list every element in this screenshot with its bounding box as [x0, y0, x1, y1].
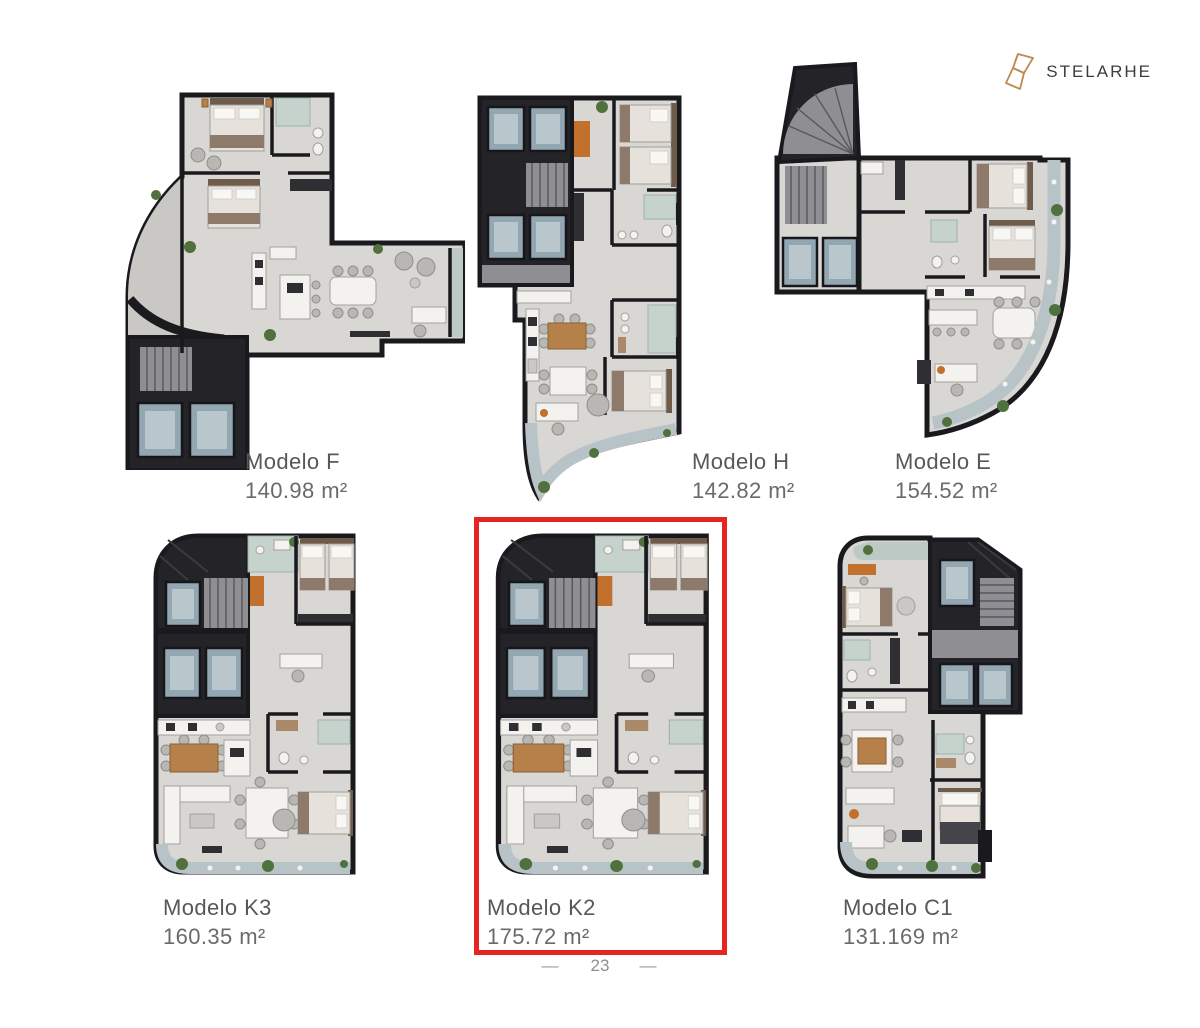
plan-name: Modelo E: [895, 447, 998, 476]
plan-area: 175.72 m²: [487, 922, 596, 951]
plan-modelo-e[interactable]: [765, 62, 1078, 440]
plan-name: Modelo F: [245, 447, 348, 476]
lift-block: [156, 632, 248, 716]
plan-area: 154.52 m²: [895, 476, 998, 505]
plan-name: Modelo H: [692, 447, 795, 476]
bedroom-1: [202, 98, 272, 151]
plan-area: 160.35 m²: [163, 922, 272, 951]
plan-modelo-k2[interactable]: [490, 528, 722, 888]
dining: [330, 266, 376, 318]
plan-area: 140.98 m²: [245, 476, 348, 505]
stair-core: [930, 540, 1020, 712]
floor-plan-modelo-k3-image: [148, 528, 368, 888]
plan-modelo-h[interactable]: [462, 85, 712, 505]
stair-core: [156, 536, 248, 630]
kitchen: [158, 720, 250, 735]
plan-name: Modelo K3: [163, 893, 272, 922]
plan-area: 131.169 m²: [843, 922, 958, 951]
label-modelo-e: Modelo E 154.52 m²: [895, 447, 998, 505]
label-modelo-c1: Modelo C1 131.169 m²: [843, 893, 958, 951]
bedroom-1: [977, 162, 1033, 210]
footer-dash-right: —: [639, 956, 658, 976]
footer-dash-left: —: [542, 956, 561, 976]
kitchen: [842, 698, 906, 712]
stair-core: [128, 337, 247, 470]
plan-name: Modelo K2: [487, 893, 596, 922]
page: STELARHE: [0, 0, 1200, 1028]
stair-core: [480, 98, 572, 285]
label-modelo-k2: Modelo K2 175.72 m²: [487, 893, 596, 951]
floor-plan-modelo-e-image: [765, 62, 1078, 440]
label-modelo-f: Modelo F 140.98 m²: [245, 447, 348, 505]
label-modelo-h: Modelo H 142.82 m²: [692, 447, 795, 505]
floor-plan-modelo-c1-image: [828, 530, 1062, 888]
plan-modelo-f[interactable]: [120, 85, 465, 470]
plan-modelo-c1[interactable]: [828, 530, 1062, 888]
page-footer: — 23 —: [0, 956, 1200, 976]
floor-plan-modelo-h-image: [462, 85, 712, 505]
floor-plan-modelo-f-image: [120, 85, 465, 470]
bedroom-2: [989, 220, 1035, 270]
terrace: [128, 177, 182, 337]
floor-plan-modelo-k2-image: [490, 528, 722, 888]
plan-modelo-k3[interactable]: [148, 528, 368, 888]
page-number: 23: [591, 956, 610, 976]
label-modelo-k3: Modelo K3 160.35 m²: [163, 893, 272, 951]
plan-area: 142.82 m²: [692, 476, 795, 505]
plan-name: Modelo C1: [843, 893, 958, 922]
stair-tower: [779, 64, 859, 162]
